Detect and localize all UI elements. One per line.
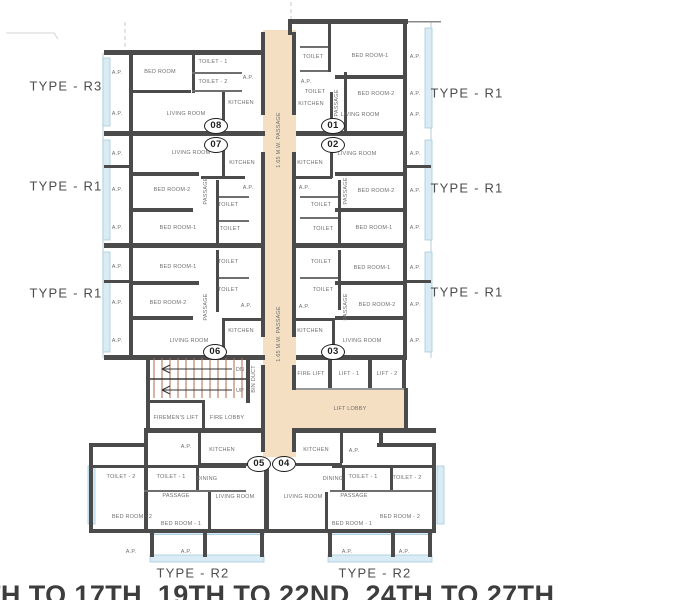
floor-plan-page: TH TO 17TH, 19TH TO 22ND, 24TH TO 27TH A… [0, 0, 675, 600]
room-label: PASSAGE [203, 293, 209, 320]
room-label: TOILET [305, 89, 325, 95]
unit-number-02: 02 [321, 137, 345, 153]
room-label: 1.65 M.W. PASSAGE [276, 306, 282, 362]
room-label: TOILET [313, 226, 333, 232]
room-label: A.P. [399, 549, 409, 555]
room-label: A.P. [112, 111, 122, 117]
room-label: A.P. [112, 151, 122, 157]
room-label: LIVING ROOM [172, 150, 211, 156]
room-label: LIVING ROOM [338, 151, 377, 157]
room-label: BED ROOM [144, 69, 176, 75]
room-label: FIREMEN'S LIFT [153, 415, 198, 421]
unit-number-03: 03 [321, 344, 345, 360]
room-label: PASSAGE [340, 493, 367, 499]
stair-up-arrow [162, 386, 232, 394]
room-label: TOILET - 2 [198, 79, 227, 85]
room-label: DN [236, 367, 244, 373]
staircase [150, 358, 246, 398]
room-label: A.P. [410, 91, 420, 97]
unit-number-06: 06 [203, 344, 227, 360]
room-label: DINING [323, 476, 343, 482]
room-label: A.P. [112, 300, 122, 306]
room-label: A.P. [299, 185, 309, 191]
room-label: TOILET [218, 202, 238, 208]
room-label: 1.65 M.W. PASSAGE [276, 112, 282, 168]
room-label: A.P. [410, 265, 420, 271]
room-label: PASSAGE [203, 177, 209, 204]
unit-number-07: 07 [204, 137, 228, 153]
room-label: A.P. [112, 264, 122, 270]
room-label: BED ROOM-2 [150, 300, 187, 306]
room-label: A.P. [410, 225, 420, 231]
room-label: BED ROOM-1 [354, 265, 391, 271]
unit-type-label: TYPE - R2 [157, 566, 230, 581]
unit-type-label: TYPE - R1 [30, 286, 103, 301]
room-label: TOILET [218, 259, 238, 265]
room-label: UP [236, 388, 244, 394]
room-label: DINING [197, 476, 217, 482]
room-label: A.P. [181, 549, 191, 555]
walls [89, 19, 436, 557]
room-label: LIVING ROOM [216, 494, 255, 500]
room-label: KITCHEN [297, 328, 323, 334]
floor-range-caption: TH TO 17TH, 19TH TO 22ND, 24TH TO 27TH [0, 580, 554, 600]
room-label: BED ROOM-1 [160, 264, 197, 270]
room-label: A.P. [410, 302, 420, 308]
room-label: FIRE LOBBY [210, 415, 244, 421]
unit-number-08: 08 [204, 118, 228, 134]
unit-type-label: TYPE - R1 [30, 179, 103, 194]
room-label: LIFT - 1 [339, 371, 360, 377]
room-label: BED ROOM-2 [358, 188, 395, 194]
room-label: KITCHEN [303, 447, 329, 453]
room-label: TOILET - 2 [392, 475, 421, 481]
room-label: A.P. [342, 549, 352, 555]
room-label: PASSAGE [334, 89, 340, 116]
room-label: A.P. [243, 75, 253, 81]
room-label: LIFT - 2 [377, 371, 398, 377]
room-label: A.P. [410, 151, 420, 157]
room-label: A.P. [410, 188, 420, 194]
unit-type-label: TYPE - R1 [431, 285, 504, 300]
room-label: TOILET [313, 287, 333, 293]
unit-number-05: 05 [247, 456, 271, 472]
unit-type-label: TYPE - R1 [431, 86, 504, 101]
room-label: A.P. [299, 304, 309, 310]
room-label: KITCHEN [298, 101, 324, 107]
room-label: BED ROOM - 1 [161, 521, 201, 527]
room-label: A.P. [410, 112, 420, 118]
room-label: A.P. [243, 185, 253, 191]
room-label: A.P. [241, 303, 251, 309]
room-label: A.P. [410, 338, 420, 344]
room-label: A.P. [410, 54, 420, 60]
room-label: KITCHEN [229, 160, 255, 166]
room-label: TOILET [220, 226, 240, 232]
unit-number-04: 04 [272, 456, 296, 472]
room-label: BED ROOM-2 [359, 302, 396, 308]
room-label: TOILET - 1 [156, 474, 185, 480]
room-label: BED ROOM-2 [358, 91, 395, 97]
room-label: TOILET - 2 [106, 474, 135, 480]
room-label: A.P. [112, 338, 122, 344]
room-label: KITCHEN [209, 447, 235, 453]
room-label: A.P. [112, 225, 122, 231]
room-label: FIRE LIFT [297, 371, 324, 377]
room-label: LIFT LOBBY [333, 406, 366, 412]
room-label: BED ROOM - 1 [332, 521, 372, 527]
room-label: A.P. [301, 79, 311, 85]
room-label: TOILET [218, 287, 238, 293]
unit-type-label: TYPE - R2 [339, 566, 412, 581]
room-label: BED ROOM-1 [160, 225, 197, 231]
room-label: KITCHEN [297, 160, 323, 166]
room-label: BED ROOM-1 [352, 53, 389, 59]
unit-number-01: 01 [321, 118, 345, 134]
room-label: TOILET - 1 [198, 59, 227, 65]
room-label: PASSAGE [343, 177, 349, 204]
room-label: A.P. [112, 187, 122, 193]
room-label: KITCHEN [228, 100, 254, 106]
room-label: LIVING ROOM [284, 494, 323, 500]
room-label: BED ROOM - 2 [380, 514, 420, 520]
room-label: BED ROOM-1 [356, 225, 393, 231]
room-label: BED ROOM - 2 [112, 514, 152, 520]
room-label: TOILET [311, 202, 331, 208]
room-label: A.P. [126, 549, 136, 555]
room-label: LIVING ROOM [341, 112, 380, 118]
room-label: A.P. [349, 448, 359, 454]
room-label: PASSAGE [162, 493, 189, 499]
room-label: PASSAGE [343, 293, 349, 320]
room-label: A.P. [181, 444, 191, 450]
stair-dn-arrow [162, 365, 232, 373]
room-label: BED ROOM-2 [154, 187, 191, 193]
room-label: TOILET [303, 54, 323, 60]
room-label: LIVING ROOM [167, 111, 206, 117]
room-label: TOILET [311, 259, 331, 265]
room-label: A.P. [112, 70, 122, 76]
unit-type-label: TYPE - R3 [30, 79, 103, 94]
room-label: TOILET - 1 [348, 474, 377, 480]
room-label: BIN DUCT [251, 365, 257, 393]
room-label: KITCHEN [228, 328, 254, 334]
room-label: LIVING ROOM [170, 338, 209, 344]
room-label: LIVING ROOM [343, 338, 382, 344]
unit-type-label: TYPE - R1 [431, 181, 504, 196]
